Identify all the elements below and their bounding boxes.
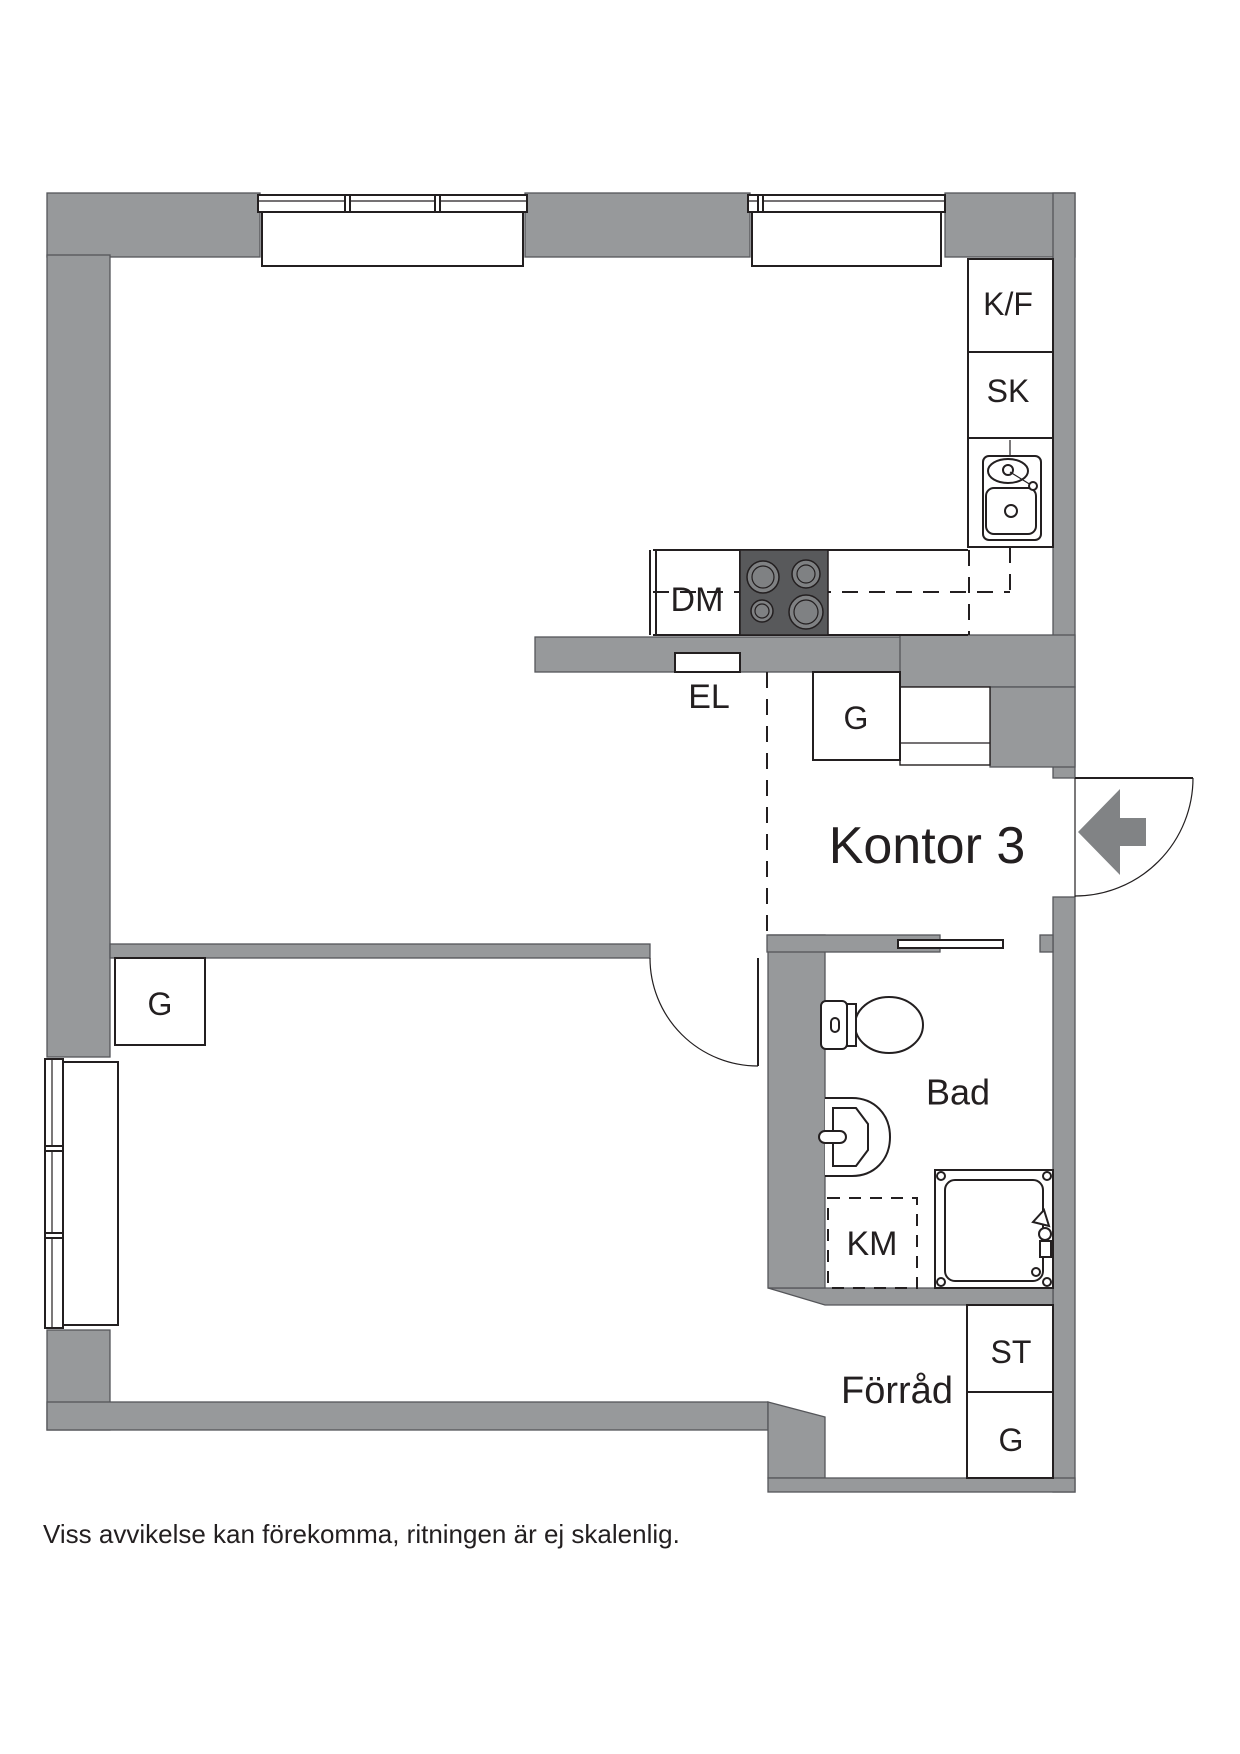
toilet-bowl [855, 997, 923, 1053]
wall-left-upper [47, 255, 110, 1057]
window-sill [262, 212, 523, 266]
shower-fitting [1040, 1241, 1051, 1257]
window-sill [63, 1062, 118, 1325]
shower-drain [1032, 1268, 1040, 1276]
entry-recess [900, 687, 990, 765]
window-frame [748, 195, 945, 212]
wash-basin [819, 1098, 890, 1176]
window-mullion [45, 1146, 63, 1151]
window-top-left [258, 195, 527, 266]
burner [792, 560, 820, 588]
wall-entry-block [900, 635, 1075, 687]
wall-storage-bottom [768, 1478, 1075, 1492]
floor-plan-page: K/F SK DM EL G Kontor 3 G Bad KM Förråd … [0, 0, 1240, 1754]
shower-corner [1043, 1172, 1051, 1180]
shower-corner [937, 1278, 945, 1286]
shower-valve [1039, 1228, 1051, 1240]
shower [935, 1170, 1053, 1288]
kitchen-sink [983, 456, 1041, 540]
label-tall-cabinet: SK [987, 373, 1030, 409]
sliding-door [898, 940, 1003, 948]
label-fridge-freezer: K/F [983, 286, 1033, 322]
entry-recess-area [900, 687, 990, 765]
wall-entry-column [990, 687, 1075, 767]
burner [751, 600, 773, 622]
wall-bathroom-left [768, 935, 825, 1288]
label-linen-closet: ST [991, 1334, 1032, 1370]
toilet-hinge [847, 1004, 856, 1046]
label-wardrobe-storage: G [999, 1422, 1024, 1458]
sink-drain [1005, 505, 1017, 517]
toilet-button [831, 1018, 839, 1032]
basin-faucet [819, 1131, 846, 1143]
window-frame [45, 1059, 63, 1328]
window-top-right [748, 195, 945, 266]
label-room-bathroom: Bad [926, 1072, 990, 1113]
wall-top-pier [525, 193, 750, 257]
electrical-niche [675, 653, 740, 672]
sink-faucet-knob [1029, 482, 1037, 490]
window-sill [752, 212, 941, 266]
wall-bathroom-top-stub [1040, 935, 1053, 952]
shower-corner [937, 1172, 945, 1180]
window-mullion [758, 195, 763, 212]
stove [740, 550, 828, 635]
shower-corner [1043, 1278, 1051, 1286]
wall-bottom-main [47, 1402, 768, 1430]
label-room-hall: Kontor 3 [829, 817, 1026, 875]
floor-plan-svg: K/F SK DM EL G Kontor 3 G Bad KM Förråd … [0, 0, 1240, 1754]
label-washing-machine: KM [847, 1225, 898, 1263]
label-wardrobe-hall: G [844, 700, 869, 736]
toilet [821, 997, 923, 1053]
window-frame [258, 195, 527, 212]
wall-right-lower [1053, 897, 1075, 1492]
shower-tray-inner [945, 1180, 1043, 1281]
label-room-storage: Förråd [841, 1370, 953, 1412]
label-electrical: EL [688, 678, 730, 716]
wall-top-left [47, 193, 260, 257]
label-dishwasher: DM [671, 581, 724, 619]
wall-room-divider [110, 944, 650, 958]
window-mullion [345, 195, 350, 212]
window-mullion [45, 1233, 63, 1238]
window-left [45, 1059, 118, 1328]
disclaimer-text: Viss avvikelse kan förekomma, ritningen … [43, 1519, 680, 1549]
window-mullion [435, 195, 440, 212]
label-wardrobe-room: G [148, 986, 173, 1022]
